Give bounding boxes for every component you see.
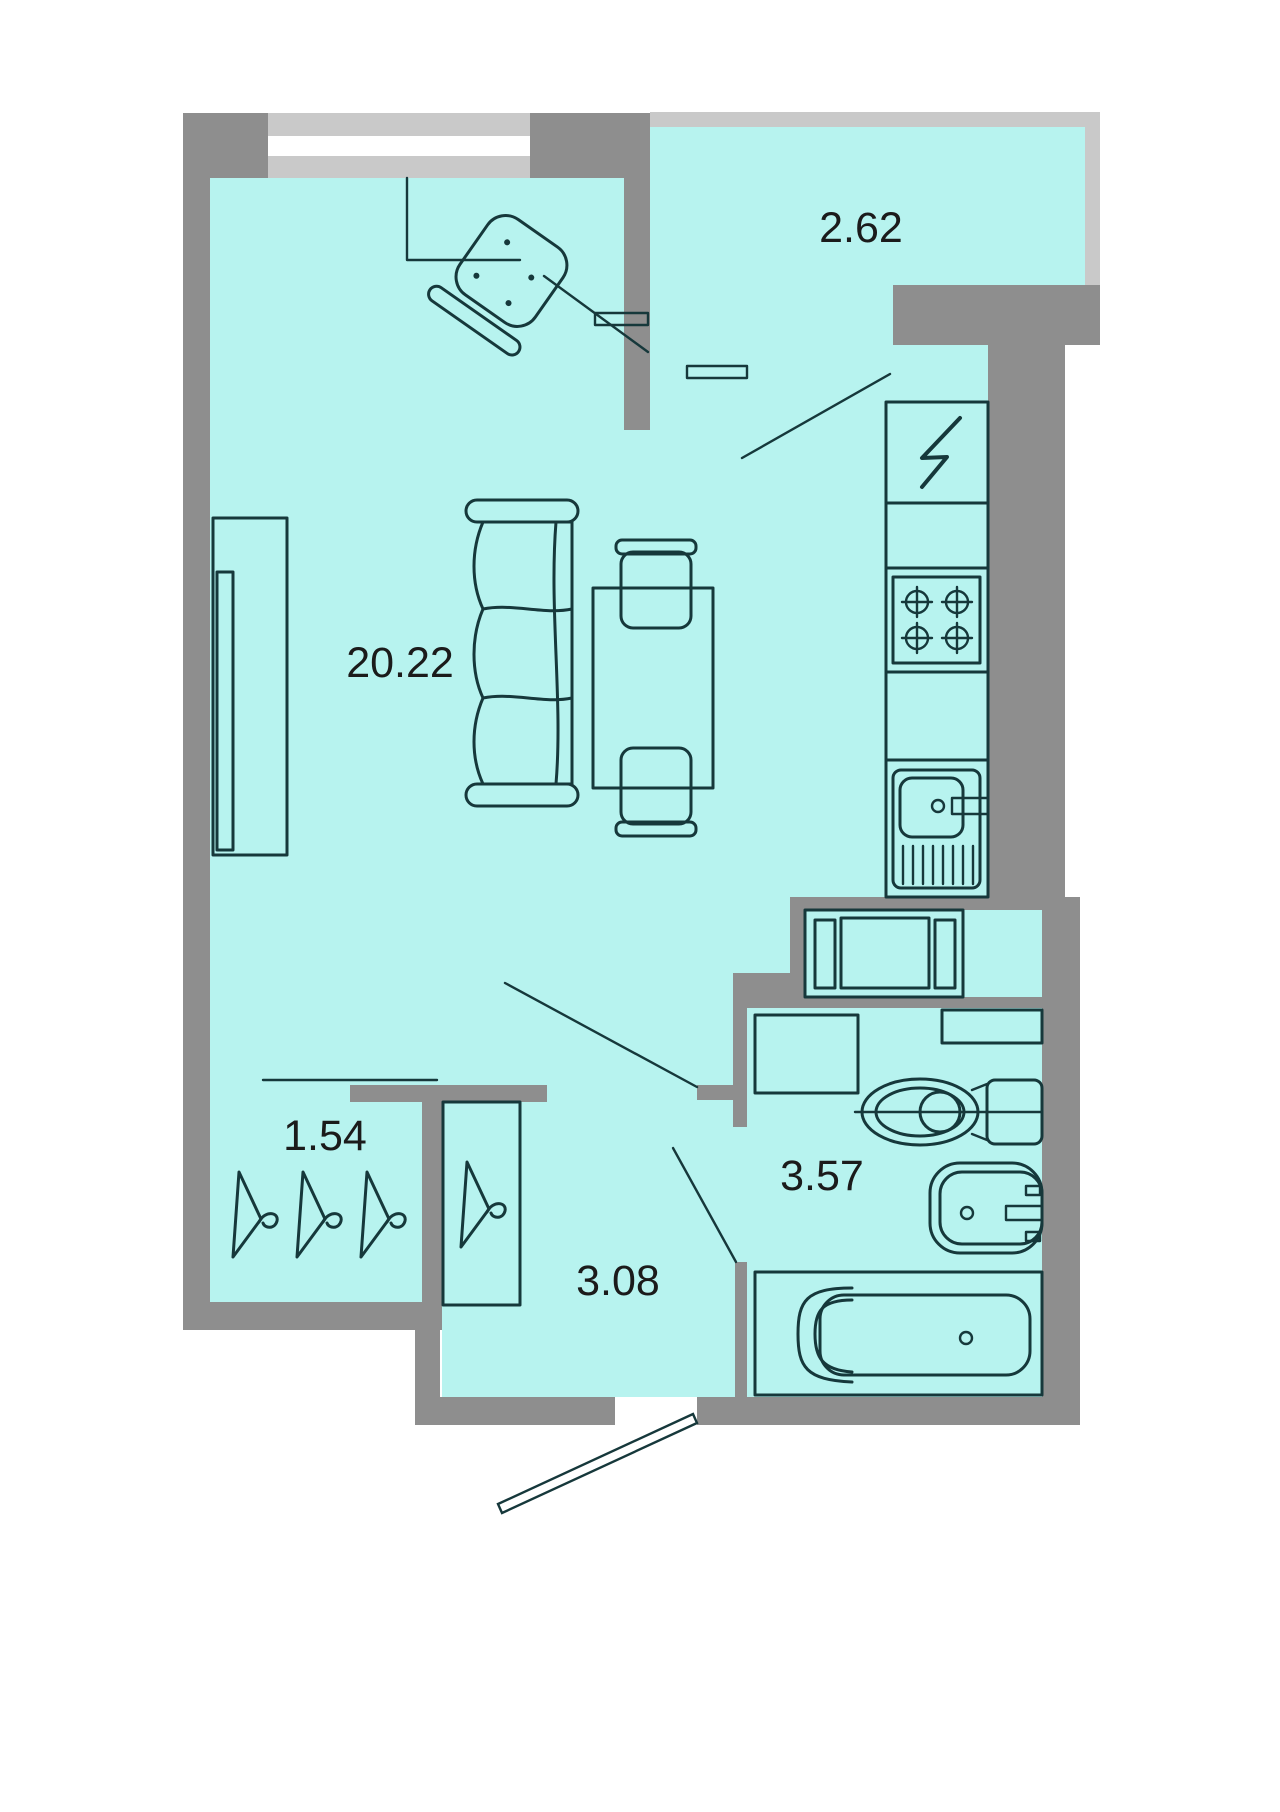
bathroom-floor — [735, 897, 1042, 1397]
wall-niche-bottom — [790, 997, 1042, 1008]
wall-balcony-divider — [624, 178, 650, 430]
wall-bathroom-left-lower — [735, 1262, 747, 1397]
wall-hallway-bottom — [440, 1397, 615, 1425]
wall-bathroom-left-upper — [733, 1008, 747, 1127]
hallway-floor — [442, 897, 735, 1397]
wall-kitchen-bottom — [792, 897, 1042, 910]
balcony-area-label: 2.62 — [819, 204, 903, 252]
wall-closet-divider — [422, 1087, 442, 1330]
entrance-door-leaf — [498, 1414, 697, 1513]
wall-living-hallway — [350, 1085, 547, 1102]
wall-closet-bottom — [183, 1302, 442, 1330]
wall-entry-left — [415, 1302, 440, 1425]
balcony-rail-top — [650, 112, 1100, 127]
window-glazing — [268, 136, 530, 156]
wall-niche-left — [790, 897, 805, 1008]
floor-plan-drawing: 20.22 2.62 1.54 3.08 3.57 — [0, 0, 1280, 1812]
floor-plan: 20.22 2.62 1.54 3.08 3.57 — [0, 0, 1280, 1812]
wall-bathroom-bottom — [697, 1397, 1080, 1425]
bathroom-area-label: 3.57 — [780, 1152, 864, 1200]
hallway-area-label: 3.08 — [576, 1257, 660, 1305]
wall-bathroom-corner — [733, 973, 790, 1008]
wall-below-balcony — [893, 285, 1100, 345]
closet-area-label: 1.54 — [283, 1112, 367, 1160]
wall-right-bathroom — [1042, 897, 1080, 1425]
living-room-area-label: 20.22 — [346, 639, 454, 687]
balcony-rail-right — [1085, 112, 1100, 290]
wall-door-stub — [697, 1085, 735, 1100]
wall-left — [183, 113, 210, 1330]
wall-top-right — [530, 113, 650, 178]
wall-right-kitchen — [988, 345, 1065, 910]
wall-top-left — [183, 113, 268, 178]
